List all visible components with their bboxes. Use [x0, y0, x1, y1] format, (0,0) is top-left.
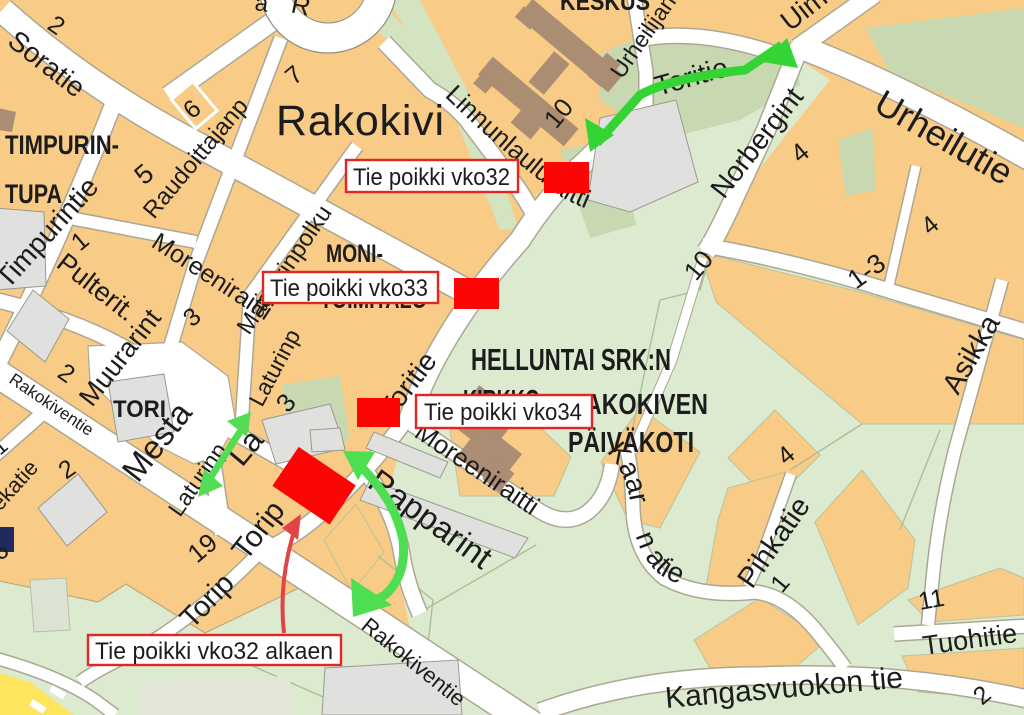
svg-text:Tie poikki vko32: Tie poikki vko32: [353, 164, 510, 191]
svg-text:HELLUNTAI SRK:N: HELLUNTAI SRK:N: [471, 342, 671, 377]
svg-text:Tie poikki vko33: Tie poikki vko33: [270, 275, 428, 302]
svg-text:Tie poikki vko32 alkaen: Tie poikki vko32 alkaen: [95, 638, 333, 665]
svg-text:Rakokivi: Rakokivi: [276, 97, 444, 145]
svg-text:11: 11: [916, 584, 946, 616]
svg-text:MONI-: MONI-: [326, 240, 383, 268]
svg-text:TIMPURIN-: TIMPURIN-: [5, 130, 119, 160]
svg-text:Tie poikki vko34: Tie poikki vko34: [424, 399, 582, 426]
svg-text:KESKUS: KESKUS: [560, 0, 650, 16]
